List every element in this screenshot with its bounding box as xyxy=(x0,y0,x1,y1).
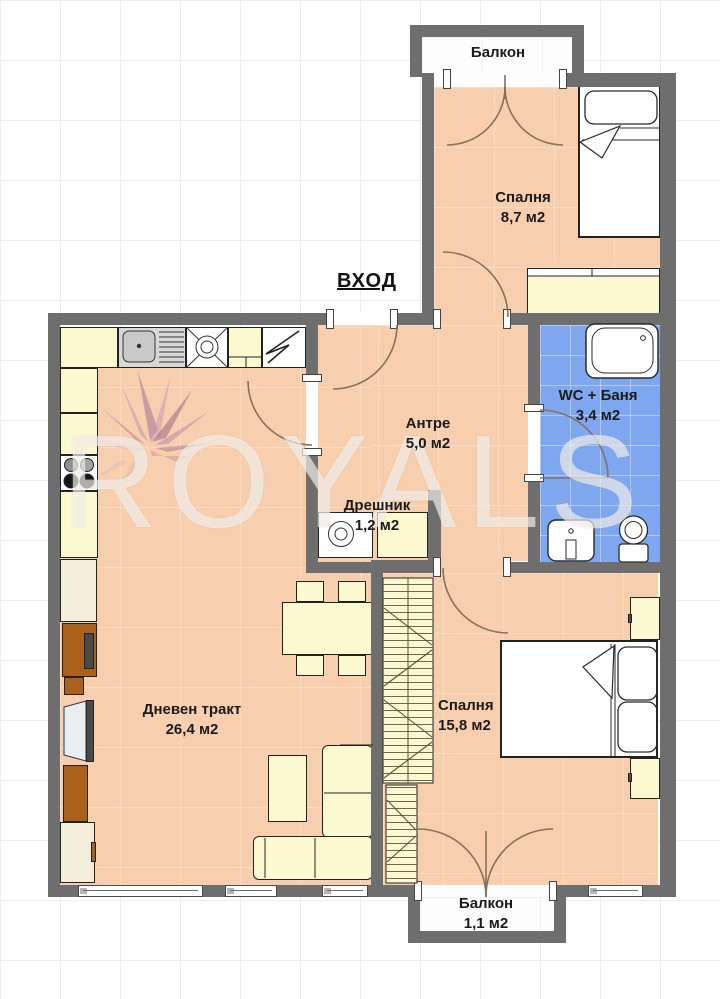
kitchen-cabinet xyxy=(228,327,262,368)
balcony-door-opening xyxy=(451,73,559,87)
wall xyxy=(397,313,437,325)
dining-chair xyxy=(296,655,324,676)
door-jamb xyxy=(390,309,398,329)
nightstand-handle xyxy=(628,773,632,782)
door-jamb xyxy=(503,557,511,577)
door-jamb xyxy=(326,309,334,329)
cabinet xyxy=(60,822,95,883)
wall xyxy=(410,25,422,77)
kitchen-cabinet xyxy=(60,368,98,413)
tv-stand xyxy=(64,677,84,695)
door-jamb xyxy=(524,474,544,482)
wall xyxy=(371,560,383,897)
wall xyxy=(203,885,225,897)
kitchen-cabinet xyxy=(60,413,98,455)
door-opening xyxy=(441,560,503,573)
nightstand-handle xyxy=(628,614,632,623)
nightstand xyxy=(630,758,660,799)
wall xyxy=(48,885,78,897)
wall xyxy=(306,325,318,378)
nightstand xyxy=(630,597,660,640)
label-bathroom: WC + Баня 3,4 м2 xyxy=(528,386,668,426)
door-opening xyxy=(441,313,503,325)
label-balcony-bottom: Балкон 1,1 м2 xyxy=(416,894,556,934)
window xyxy=(588,885,643,897)
wall xyxy=(572,25,584,75)
wardrobe xyxy=(528,276,659,313)
door-jamb xyxy=(302,448,322,456)
door-jamb xyxy=(443,69,451,89)
tv-stand-inset xyxy=(84,633,94,669)
door-opening xyxy=(334,313,390,325)
dining-chair xyxy=(296,581,324,602)
kitchen-cabinet xyxy=(60,491,98,558)
label-living: Дневен тракт 26,4 м2 xyxy=(122,700,262,740)
kitchen-vent-unit xyxy=(186,327,228,368)
door-jamb xyxy=(503,309,511,329)
fridge-icon xyxy=(262,327,306,368)
coffee-table xyxy=(268,755,307,822)
stove-icon xyxy=(60,455,98,491)
label-entrance: ВХОД xyxy=(327,270,407,293)
wall xyxy=(507,313,660,325)
cabinet-handle xyxy=(91,842,96,862)
label-bedroom-bottom: Спалня 15,8 м2 xyxy=(438,696,558,736)
wall xyxy=(422,73,434,325)
sofa xyxy=(253,836,373,880)
wall xyxy=(660,73,676,897)
dining-chair xyxy=(338,581,366,602)
kitchen-sink-unit xyxy=(118,327,186,368)
wall xyxy=(643,885,676,897)
tv-icon xyxy=(86,700,94,762)
cabinet xyxy=(60,559,97,622)
wall xyxy=(48,313,60,897)
floor-plan: ROYALS Балкон Спалня 8,7 м2 ВХОД Антре 5… xyxy=(0,0,720,999)
label-balcony-top: Балкон xyxy=(433,43,563,63)
kitchen-cabinet xyxy=(60,327,118,368)
window xyxy=(322,885,368,897)
label-bedroom-top: Спалня 8,7 м2 xyxy=(453,188,593,228)
wall xyxy=(528,478,540,573)
label-hallway: Антре 5,0 м2 xyxy=(358,414,498,454)
wall xyxy=(48,313,327,325)
wall xyxy=(277,885,322,897)
wall xyxy=(410,25,584,37)
door-jamb xyxy=(433,557,441,577)
door-jamb xyxy=(433,309,441,329)
dining-table xyxy=(282,602,373,655)
wall xyxy=(553,885,588,897)
label-closet: Дрешник 1,2 м2 xyxy=(307,496,447,536)
window xyxy=(225,885,277,897)
door-opening xyxy=(306,382,318,448)
room-bathroom xyxy=(540,325,660,562)
dining-chair xyxy=(338,655,366,676)
window xyxy=(78,885,203,897)
door-jamb xyxy=(302,374,322,382)
tv-stand xyxy=(63,765,88,822)
door-jamb xyxy=(559,69,567,89)
wall xyxy=(507,562,660,573)
sofa xyxy=(322,745,373,838)
